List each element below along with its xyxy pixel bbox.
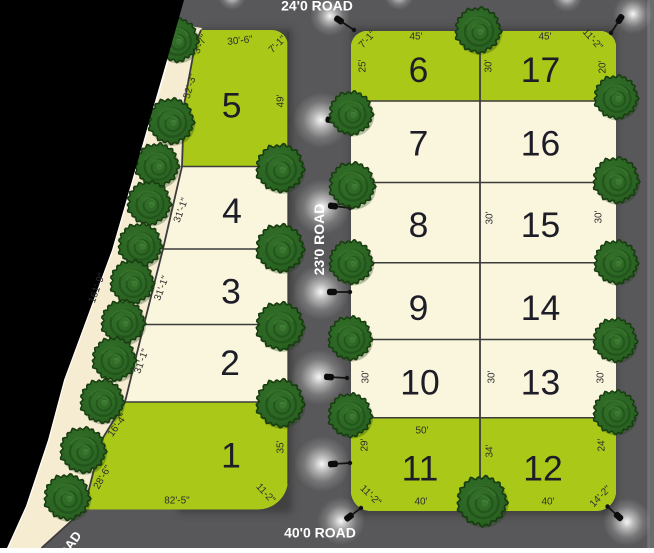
svg-text:34': 34' (485, 444, 496, 457)
svg-text:13: 13 (521, 363, 561, 403)
svg-text:25': 25' (358, 59, 369, 72)
svg-text:30': 30' (361, 370, 372, 383)
svg-text:45': 45' (409, 32, 422, 43)
svg-text:12: 12 (523, 449, 563, 489)
svg-text:10: 10 (400, 363, 440, 403)
svg-text:30': 30' (594, 210, 605, 223)
svg-text:2: 2 (220, 343, 240, 383)
svg-text:49': 49' (276, 94, 287, 107)
svg-text:82'-5": 82'-5" (164, 496, 190, 507)
svg-text:45': 45' (538, 32, 551, 43)
svg-text:40': 40' (541, 497, 554, 508)
svg-text:29': 29' (360, 438, 371, 451)
svg-text:30': 30' (596, 370, 607, 383)
svg-text:14: 14 (521, 288, 561, 328)
svg-text:7: 7 (409, 124, 429, 164)
svg-text:20': 20' (598, 60, 609, 73)
svg-text:24'0 ROAD: 24'0 ROAD (281, 0, 353, 14)
svg-text:17: 17 (521, 50, 561, 90)
svg-text:15: 15 (521, 205, 561, 245)
svg-text:16: 16 (521, 124, 561, 164)
svg-text:5: 5 (222, 86, 242, 126)
svg-text:35': 35' (276, 440, 287, 453)
svg-text:23'0 ROAD: 23'0 ROAD (311, 204, 327, 276)
svg-text:24': 24' (597, 438, 608, 451)
svg-text:30': 30' (485, 211, 496, 224)
svg-text:9: 9 (409, 288, 429, 328)
svg-text:3: 3 (221, 272, 241, 312)
svg-text:6: 6 (409, 50, 429, 90)
svg-text:40'0 ROAD: 40'0 ROAD (284, 525, 356, 541)
svg-text:8: 8 (409, 205, 429, 245)
svg-text:30': 30' (487, 370, 498, 383)
svg-text:40': 40' (414, 497, 427, 508)
svg-text:11: 11 (402, 449, 439, 489)
svg-text:30': 30' (484, 59, 495, 72)
svg-text:4: 4 (222, 191, 242, 231)
svg-text:50': 50' (415, 426, 428, 437)
svg-text:1: 1 (221, 436, 241, 476)
